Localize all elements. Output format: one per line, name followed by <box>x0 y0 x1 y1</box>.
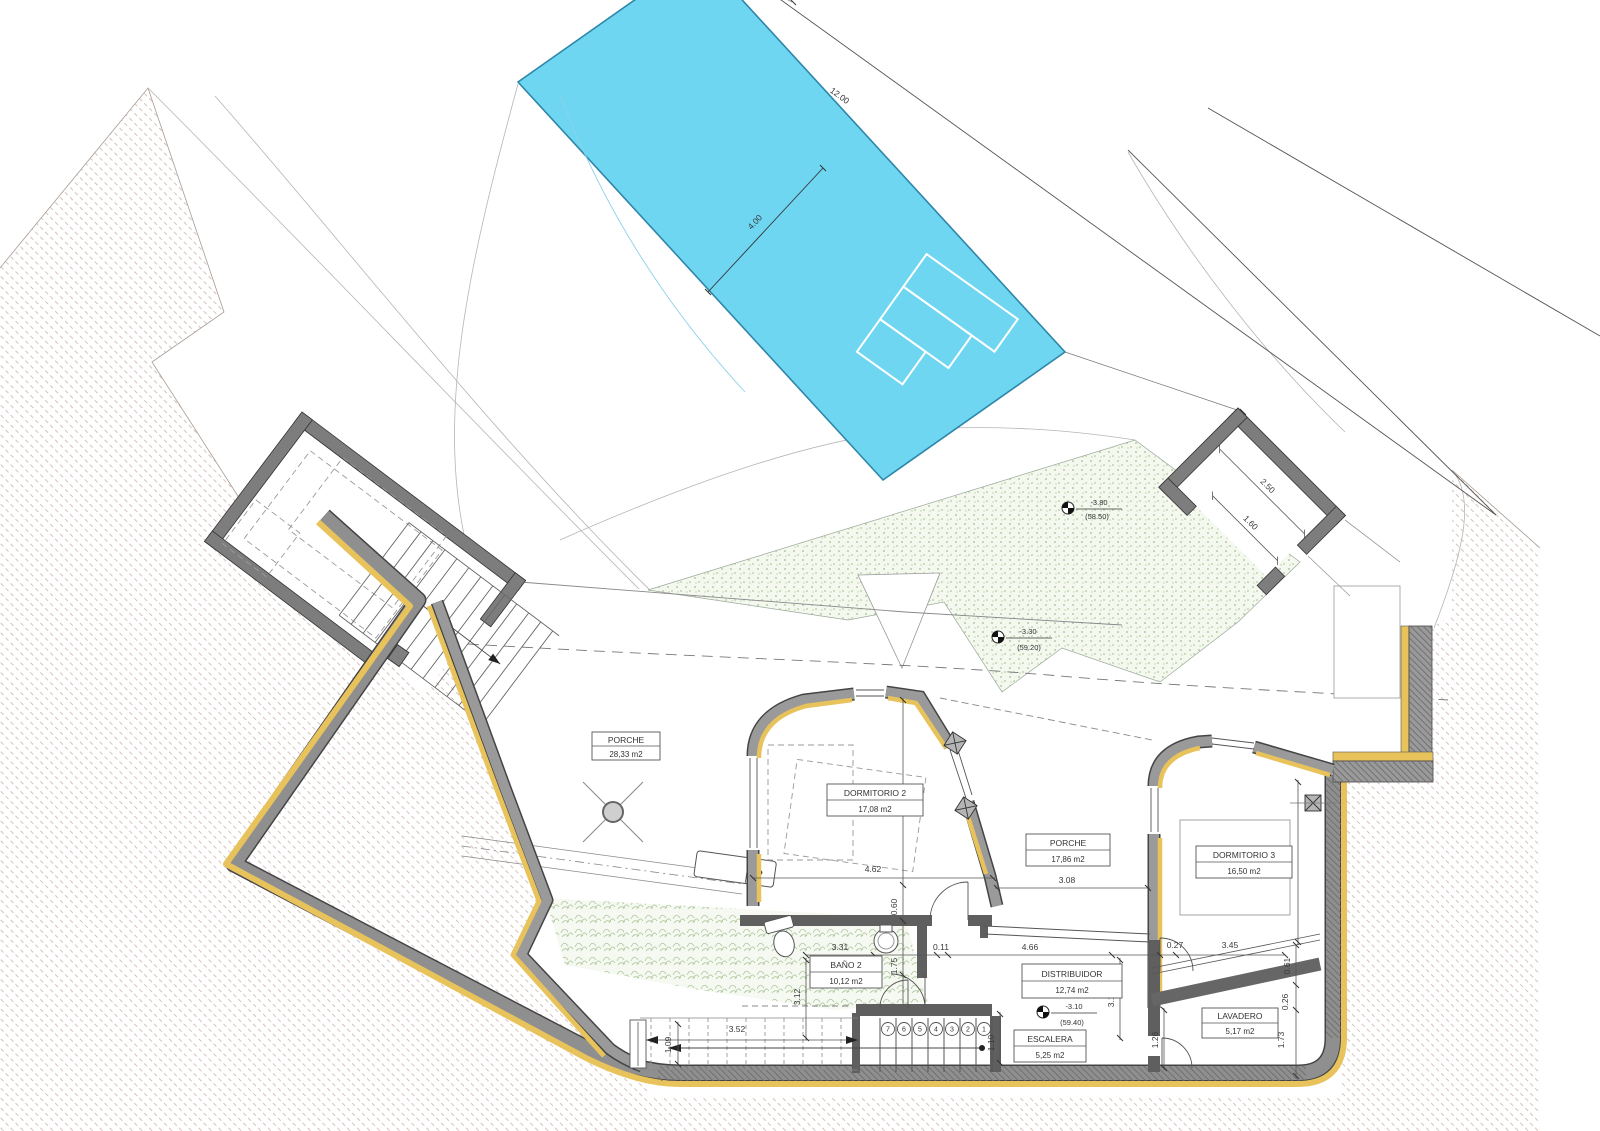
room-label-lavadero: LAVADERO 5,17 m2 <box>1202 1008 1278 1038</box>
dimension-text: 3.12 <box>792 988 802 1005</box>
stair-number: 7 <box>886 1027 890 1034</box>
room-name: PORCHE <box>608 735 645 745</box>
dimension-text: 4.62 <box>865 864 882 874</box>
dimension-text: 1.09 <box>663 1036 673 1053</box>
right-wall-hatch <box>1326 778 1341 1038</box>
stair-number: 6 <box>902 1027 906 1034</box>
swimming-pool <box>518 0 1065 480</box>
terrace-landing <box>1334 586 1400 698</box>
level-marker-icon <box>1037 1006 1049 1018</box>
room-area: 5,17 m2 <box>1226 1027 1255 1036</box>
room-name: BAÑO 2 <box>830 960 861 970</box>
room-label-dormitorio3: DORMITORIO 3 16,50 m2 <box>1196 846 1292 878</box>
room-label-dormitorio2: DORMITORIO 2 17,08 m2 <box>827 784 923 816</box>
stair-start-dot <box>979 1045 985 1051</box>
room-label-bano2: BAÑO 2 10,12 m2 <box>810 956 882 988</box>
dimension-text: 4.66 <box>1022 942 1039 952</box>
dimension-text: 3.31 <box>832 942 849 952</box>
dimension-text: 1.26 <box>1150 1031 1160 1048</box>
floor-plan-canvas: 12.00 4.00 <box>0 0 1600 1131</box>
room-name: PORCHE <box>1050 838 1087 848</box>
level-elevation: (59.20) <box>1017 643 1041 652</box>
dimension-text: 1.75 <box>889 957 899 974</box>
stair-number: 1 <box>982 1027 986 1034</box>
room-label-distribuidor: DISTRIBUIDOR 12,74 m2 <box>1022 964 1122 998</box>
dimension-text: 3.52 <box>729 1024 746 1034</box>
room-label-porche-terrace: PORCHE 28,33 m2 <box>592 732 660 760</box>
floor-plan-page: 12.00 4.00 <box>0 0 1600 1131</box>
dimension-text: 0.60 <box>889 898 899 915</box>
room-label-porche: PORCHE 17,86 m2 <box>1026 834 1110 866</box>
stair-number: 2 <box>966 1027 970 1034</box>
room-name: ESCALERA <box>1027 1034 1073 1044</box>
dimension-text: 0.11 <box>933 942 949 952</box>
room-area: 12,74 m2 <box>1055 986 1089 995</box>
room-area: 28,33 m2 <box>609 750 643 759</box>
level-elevation: (59.40) <box>1060 1018 1084 1027</box>
level-marker-icon <box>992 631 1004 643</box>
stair-west-window <box>630 1020 646 1068</box>
bottom-wall-hatch <box>658 1066 1306 1081</box>
room-area: 17,08 m2 <box>858 805 892 814</box>
dimension-text: 0.61 <box>1282 957 1292 974</box>
room-label-escalera: ESCALERA 5,25 m2 <box>1014 1030 1086 1062</box>
stair-number: 4 <box>934 1027 938 1034</box>
room-area: 17,86 m2 <box>1051 855 1085 864</box>
level-marker-icon <box>1062 502 1074 514</box>
room-name: DORMITORIO 2 <box>844 788 906 798</box>
dimension-text: 1.10 <box>986 1034 996 1051</box>
level-value: -3.10 <box>1065 1002 1082 1011</box>
dimension-text: 0.26 <box>1280 993 1290 1010</box>
level-value: -3.80 <box>1090 498 1107 507</box>
dimension-text: 3.45 <box>1222 940 1239 950</box>
room-area: 5,25 m2 <box>1036 1051 1065 1060</box>
room-name: LAVADERO <box>1217 1011 1262 1021</box>
room-name: DISTRIBUIDOR <box>1042 969 1103 979</box>
level-value: -3.30 <box>1019 627 1036 636</box>
room-area: 16,50 m2 <box>1227 867 1261 876</box>
room-area: 10,12 m2 <box>829 977 863 986</box>
level-elevation: (58.50) <box>1085 512 1109 521</box>
room-name: DORMITORIO 3 <box>1213 850 1275 860</box>
stair-number: 5 <box>918 1027 922 1034</box>
stair-number: 3 <box>950 1027 954 1034</box>
dimension-text: 0.27 <box>1167 940 1184 950</box>
dimension-text: 3.08 <box>1059 875 1076 885</box>
